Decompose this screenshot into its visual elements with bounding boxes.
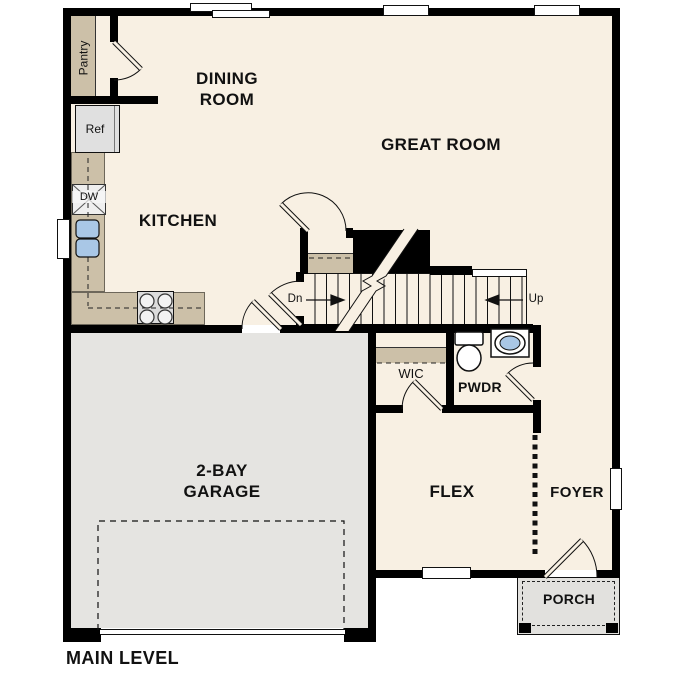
wall-under-stairs bbox=[300, 324, 533, 333]
garage-label-line1: 2-BAY bbox=[142, 460, 302, 481]
stair-handrail bbox=[472, 269, 527, 277]
wall-stair-closet-stub bbox=[346, 228, 353, 238]
wic-shelf bbox=[376, 347, 446, 363]
refrigerator-label: Ref bbox=[75, 122, 115, 136]
page-title: MAIN LEVEL bbox=[66, 648, 179, 669]
wall-flex-bottom-b bbox=[597, 570, 620, 578]
great-room-label: GREAT ROOM bbox=[341, 134, 541, 155]
pantry-label-text: Pantry bbox=[76, 41, 90, 76]
flex-label: FLEX bbox=[392, 481, 512, 502]
wic-label: WIC bbox=[381, 366, 441, 381]
dining-room-label: DINING ROOM bbox=[157, 68, 297, 110]
wall-stair-chase bbox=[353, 230, 430, 273]
staircase bbox=[304, 273, 527, 325]
garage-door bbox=[100, 629, 345, 635]
wall-garage-bottom-left-stub bbox=[63, 628, 101, 642]
dishwasher-label: DW bbox=[72, 191, 106, 203]
porch-post bbox=[606, 623, 618, 633]
dining-room-label-line1: DINING bbox=[157, 68, 297, 89]
wall-pwdr-right-upper bbox=[533, 325, 541, 367]
porch-label: PORCH bbox=[509, 591, 629, 607]
stair-down-label: Dn bbox=[284, 293, 306, 305]
window-great-room-2 bbox=[534, 5, 580, 16]
wall-pantry-right-upper bbox=[110, 16, 118, 42]
porch-post bbox=[519, 623, 531, 633]
window-great-room-1 bbox=[383, 5, 429, 16]
wall-hall-bottom-b bbox=[442, 405, 541, 413]
window-flex bbox=[422, 567, 471, 579]
range-stove bbox=[137, 291, 174, 324]
stair-up-label: Up bbox=[525, 293, 547, 305]
garage-label-line2: GARAGE bbox=[142, 481, 302, 502]
wall-garage-right bbox=[368, 333, 376, 642]
stair-closet-shelf bbox=[308, 253, 353, 274]
dining-room-label-line2: ROOM bbox=[157, 89, 297, 110]
kitchen-label: KITCHEN bbox=[118, 210, 238, 231]
floor-plan: Pantry DINING ROOM GREAT ROOM KITCHEN 2-… bbox=[0, 0, 687, 687]
kitchen-counter-left bbox=[71, 152, 105, 292]
wall-stair-stub-bottom bbox=[296, 316, 304, 325]
foyer-label: FOYER bbox=[517, 482, 637, 503]
wall-kitchen-garage-a bbox=[63, 325, 242, 333]
wall-stair-closet-left bbox=[300, 228, 308, 274]
pwdr-label: PWDR bbox=[430, 379, 530, 395]
pantry-label: Pantry bbox=[70, 19, 96, 97]
window-kitchen-sink bbox=[57, 219, 70, 259]
wall-garage-bottom-right-stub bbox=[344, 628, 376, 642]
garage-label: 2-BAY GARAGE bbox=[142, 460, 302, 502]
wall-pantry-right-lower bbox=[110, 78, 118, 98]
sliding-door-pane bbox=[212, 10, 270, 18]
wall-stair-rail-base bbox=[430, 266, 472, 275]
